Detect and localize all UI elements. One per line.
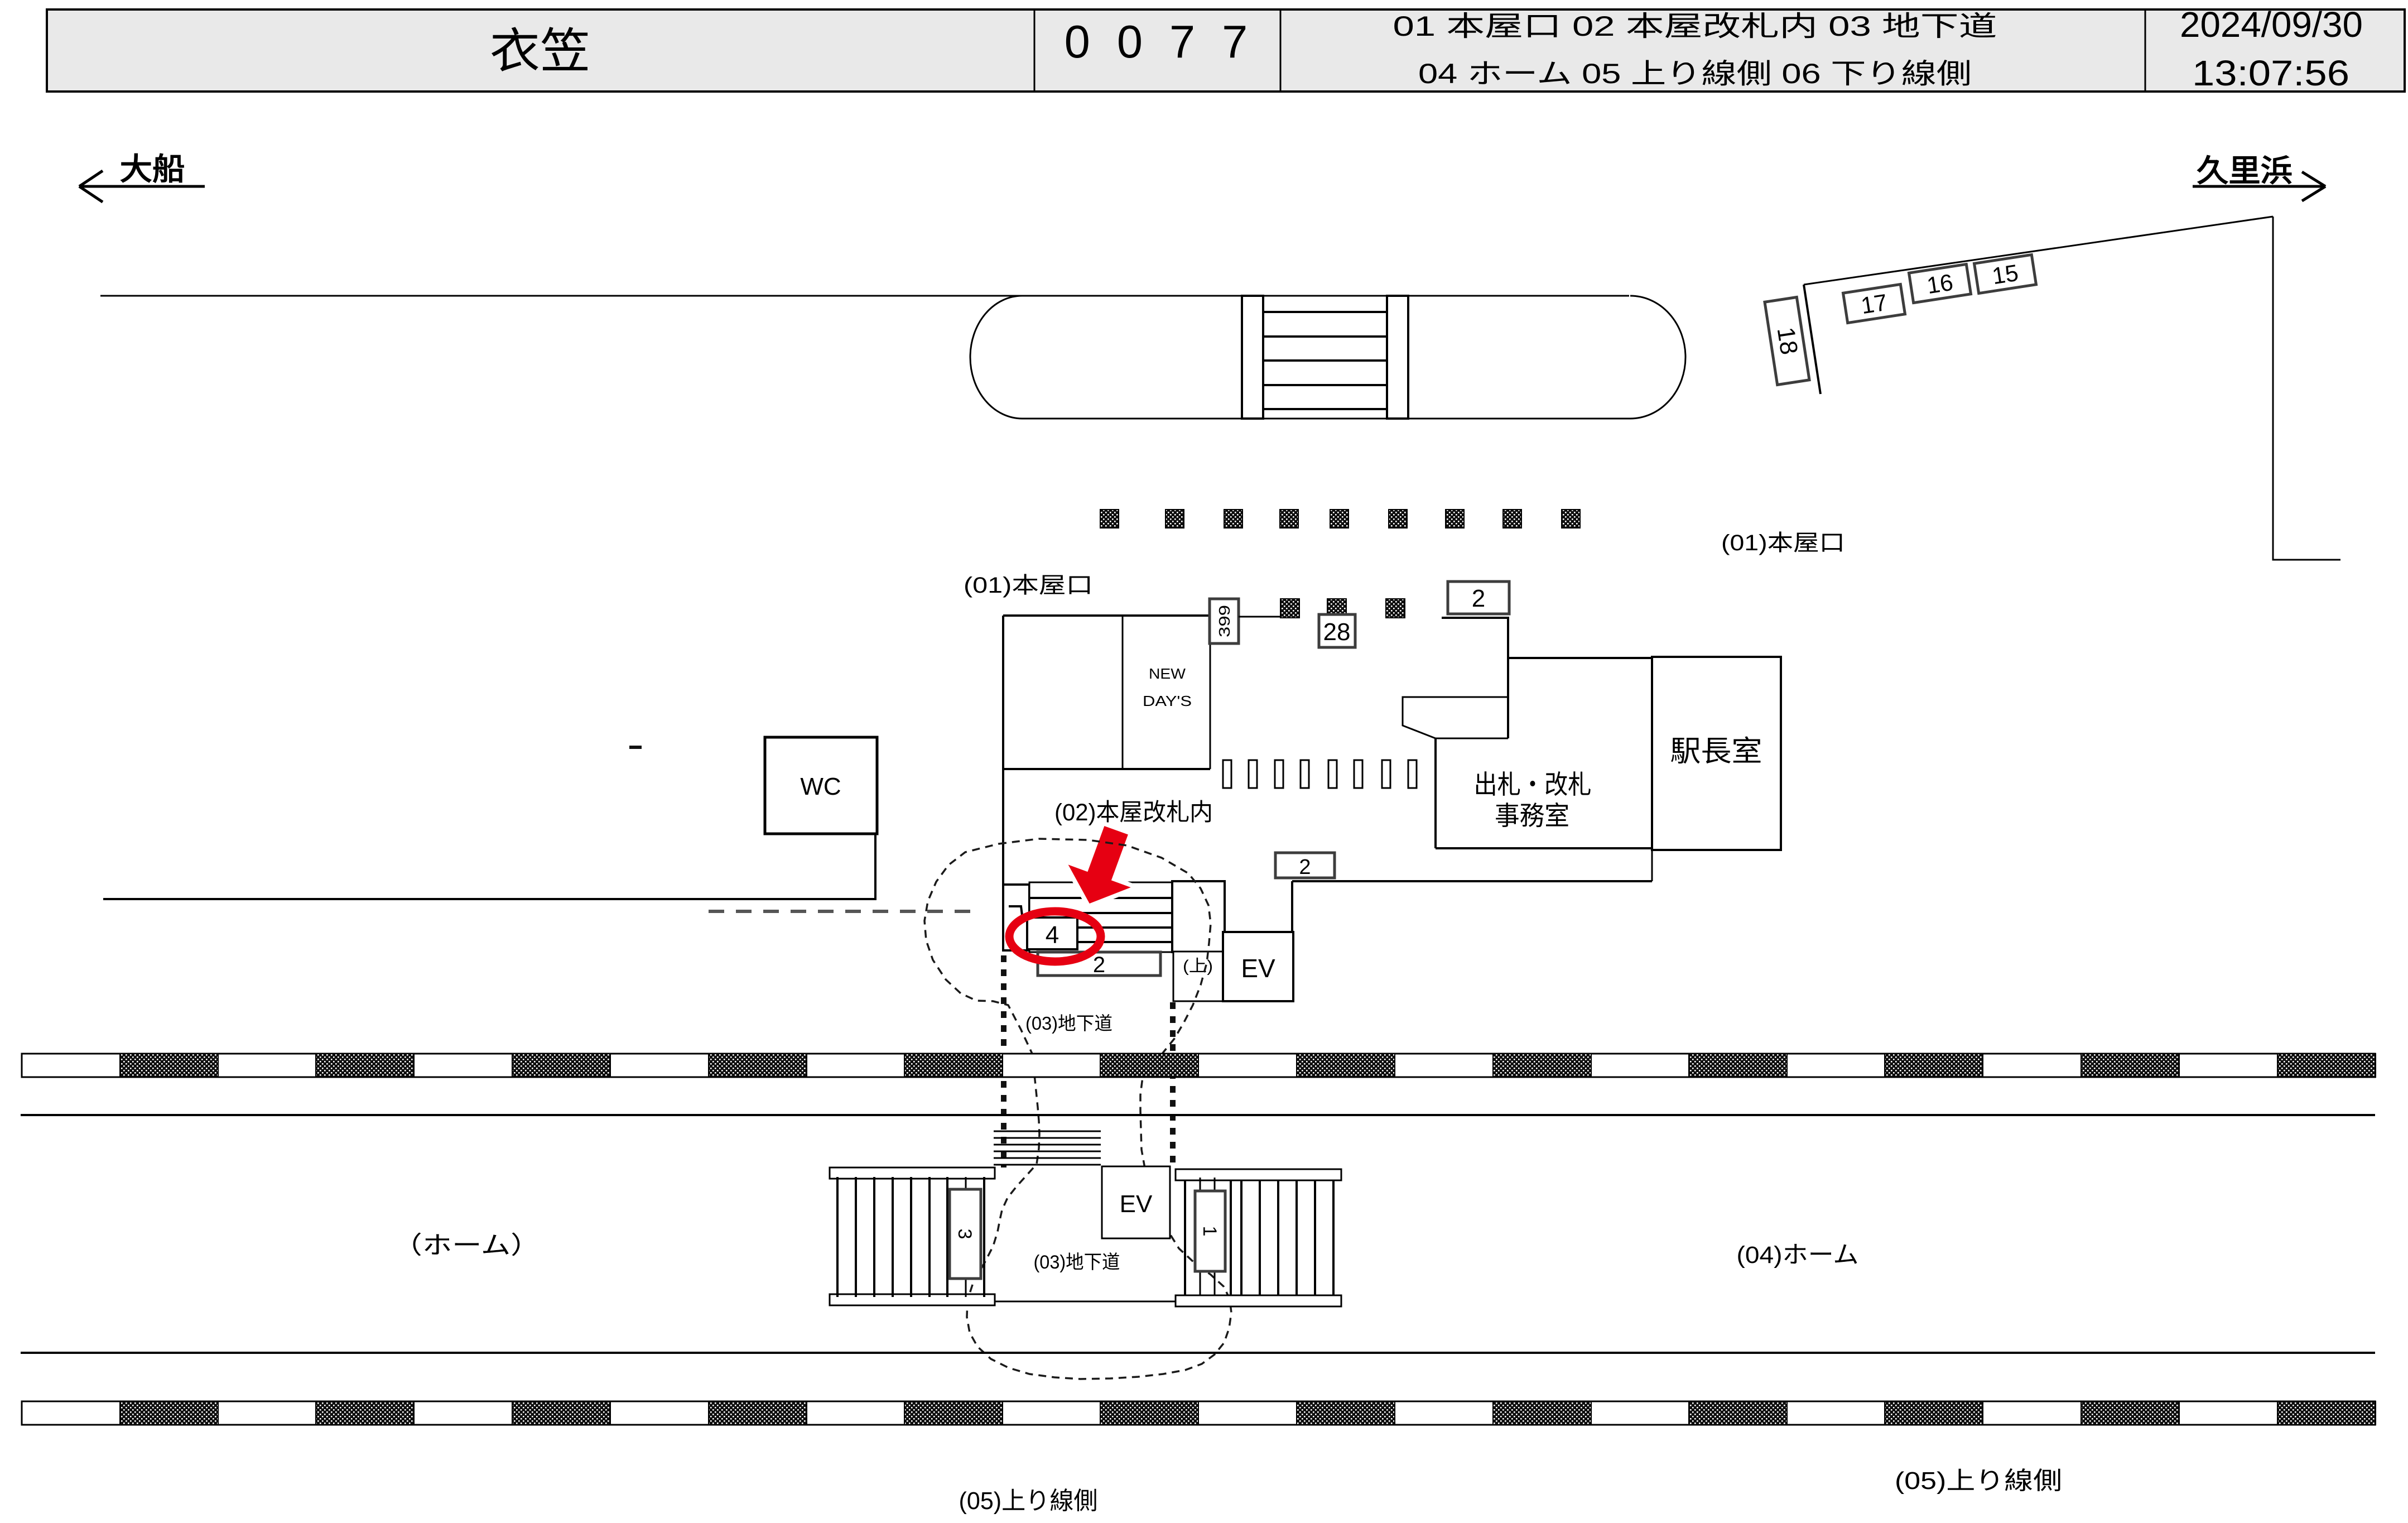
svg-text:2: 2 (1299, 856, 1311, 879)
svg-text:事務室: 事務室 (1495, 801, 1569, 830)
svg-text:13:07:56: 13:07:56 (2192, 53, 2349, 93)
svg-text:15: 15 (1990, 260, 2020, 290)
svg-text:0077: 0077 (1065, 16, 1275, 68)
svg-text:久里浜: 久里浜 (2197, 153, 2293, 188)
svg-text:(01)本屋口: (01)本屋口 (964, 573, 1093, 598)
svg-text:衣笠: 衣笠 (490, 25, 590, 78)
svg-text:NEW: NEW (1149, 665, 1186, 682)
svg-text:(01)本屋口: (01)本屋口 (1721, 531, 1845, 555)
svg-text:(02)本屋改札内: (02)本屋改札内 (1054, 799, 1213, 826)
svg-text:1: 1 (1199, 1226, 1220, 1237)
svg-text:4: 4 (1046, 921, 1059, 949)
svg-text:(03)地下道: (03)地下道 (1034, 1252, 1120, 1273)
svg-text:DAY'S: DAY'S (1143, 693, 1192, 709)
svg-text:(04)ホーム: (04)ホーム (1737, 1242, 1859, 1269)
svg-text:18: 18 (1772, 325, 1803, 357)
svg-text:(上): (上) (1183, 957, 1213, 976)
svg-text:大船: 大船 (120, 152, 185, 186)
svg-text:(03)地下道: (03)地下道 (1025, 1013, 1113, 1034)
svg-text:（ホーム）: （ホーム） (393, 1232, 541, 1259)
svg-text:2: 2 (1093, 953, 1105, 977)
svg-text:3: 3 (954, 1229, 975, 1239)
svg-text:04 ホーム 05 上り線側 06 下り線側: 04 ホーム 05 上り線側 06 下り線側 (1418, 58, 1972, 89)
svg-text:EV: EV (1241, 954, 1275, 983)
svg-text:01 本屋口 02 本屋改札内 03 地下道: 01 本屋口 02 本屋改札内 03 地下道 (1393, 11, 1997, 42)
svg-text:399: 399 (1216, 605, 1233, 637)
svg-text:28: 28 (1323, 618, 1351, 646)
svg-text:2024/09/30: 2024/09/30 (2180, 4, 2363, 45)
svg-text:出札・改札: 出札・改札 (1474, 770, 1592, 799)
svg-text:16: 16 (1925, 269, 1954, 299)
svg-text:WC: WC (800, 773, 841, 800)
svg-text:(05)上り線側: (05)上り線側 (1895, 1467, 2062, 1495)
svg-text:EV: EV (1120, 1190, 1153, 1218)
svg-text:駅長室: 駅長室 (1670, 736, 1762, 768)
svg-text:2: 2 (1472, 585, 1485, 612)
svg-text:17: 17 (1859, 289, 1889, 319)
svg-text:(05)上り線側: (05)上り線側 (959, 1487, 1098, 1515)
